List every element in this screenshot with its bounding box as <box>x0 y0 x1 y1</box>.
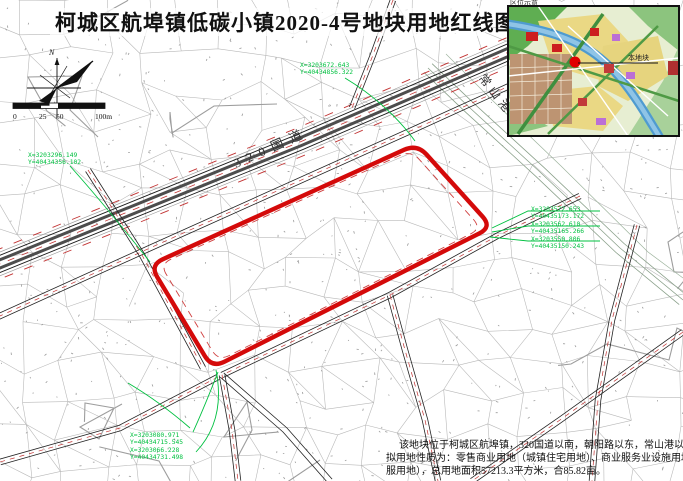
description-line-2: 拟用地性质为：零售商业用地（城镇住宅用地）、商业服务业设施用地（其他商 <box>386 451 683 464</box>
coordinate-label-west-corner: Y=40434356.102 <box>28 159 81 166</box>
north-arrowhead-icon <box>55 58 60 65</box>
scale-label-25: 25 <box>39 112 47 121</box>
coordinate-label-east-corner-3: Y=40435150.243 <box>531 243 584 250</box>
red-line-map-sheet: 320国道 常山港 X=3203296.149Y=40434356.102X=3… <box>0 0 683 481</box>
coordinate-label-west-corner: X=3203296.149 <box>28 152 77 159</box>
coordinate-label-east-corner-1: Y=40435173.172 <box>531 213 584 220</box>
coordinate-label-north-corner: Y=40434856.322 <box>300 69 353 76</box>
plot-description: 该地块位于柯城区航埠镇，320国道以南，朝阳路以东，常山港以西。 拟用地性质为：… <box>386 438 683 477</box>
coordinate-label-north-corner: X=3203672.643 <box>300 62 349 69</box>
scale-labels: 02550100m <box>13 112 112 121</box>
page-title: 柯城区航埠镇低碳小镇2020-4号地块用地红线图 <box>55 11 517 35</box>
coordinate-label-east-corner-2: X=3203562.610 <box>531 221 580 228</box>
inset-map-content <box>508 6 679 138</box>
coordinate-label-east-corner-1: X=3203572.653 <box>531 206 580 213</box>
scale-bar: 02550100m <box>13 103 112 121</box>
coordinate-label-south-corner-1: X=3203080.971 <box>130 432 179 439</box>
coordinate-label-east-corner-3: X=3203550.806 <box>531 236 580 243</box>
description-line-3: 服用地），总用地面积57213.3平方米，合85.82亩。 <box>386 464 606 477</box>
coordinate-label-east-corner-2: Y=40435165.266 <box>531 228 584 235</box>
inset-marker-label: 本地块 <box>628 53 649 62</box>
location-inset-map: 本地块 区位示意 <box>508 0 679 138</box>
description-line-1: 该地块位于柯城区航埠镇，320国道以南，朝阳路以东，常山港以西。 <box>399 438 683 451</box>
coordinate-label-south-corner-2: Y=40434731.498 <box>130 454 183 461</box>
coordinate-label-south-corner-1: Y=40434715.545 <box>130 439 183 446</box>
cadastral-map: 320国道 常山港 X=3203296.149Y=40434356.102X=3… <box>0 0 683 481</box>
scale-label-100m: 100m <box>95 112 112 121</box>
subject-plot-dot <box>570 57 581 68</box>
coordinate-label-south-corner-2: X=3203066.228 <box>130 447 179 454</box>
scale-label-0: 0 <box>13 112 17 121</box>
scale-label-50: 50 <box>56 112 64 121</box>
coordinate-labels: X=3203296.149Y=40434356.102X=3203672.643… <box>28 62 584 461</box>
compass-north-label: N <box>48 48 55 57</box>
